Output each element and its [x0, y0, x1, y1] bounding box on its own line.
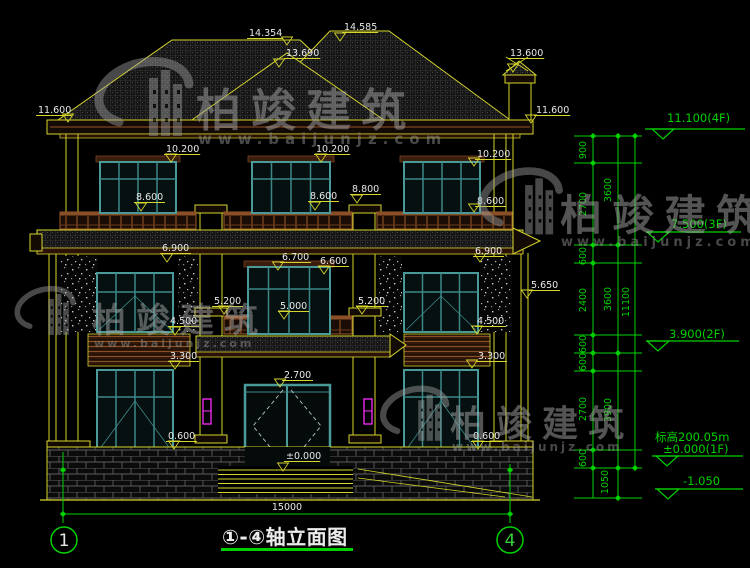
pier-cap [195, 435, 227, 443]
elevation-dim-label: 4.500 [477, 316, 504, 327]
chain-dim-value: 2400 [578, 288, 589, 312]
pier-cap [349, 435, 381, 443]
watermark-brand-text: 柏竣建筑 [450, 404, 634, 445]
elevation-dim-label: 11.600 [536, 105, 569, 116]
logo-window-dot [153, 104, 156, 108]
elevation-dim-label: 8.600 [310, 191, 337, 202]
logo-window-dot [51, 315, 53, 317]
logo-window-dot [529, 207, 532, 210]
elevation-dim-label: 5.650 [531, 280, 558, 291]
logo-window-dot [529, 219, 532, 222]
logo-window-dot [438, 428, 440, 431]
chain-tick-dot [590, 332, 596, 338]
marker-triangle [647, 341, 669, 351]
chain-tick-dot [632, 465, 638, 471]
logo-window-dot [539, 207, 542, 210]
elevation-dim-label: 11.600 [38, 105, 71, 116]
elevation-dim-label: 2.700 [284, 370, 311, 381]
chain-dim-value: 600 [578, 335, 589, 353]
elevation-dim-label: 8.800 [352, 184, 379, 195]
chain-dim-value: 900 [578, 141, 589, 159]
watermark-url-text: www.baijunjz.com [561, 235, 750, 250]
canopy-fascia-1f [196, 352, 390, 357]
chain-dim-value: 1050 [600, 470, 611, 494]
cad-drawing: 14.35414.58513.69013.60011.60011.60010.2… [0, 0, 750, 568]
logo-window-dot [438, 418, 440, 421]
logo-window-dot [66, 306, 68, 308]
drawing-title: ①-④轴立面图 [222, 521, 382, 550]
elevation-dim-label: 13.690 [286, 48, 319, 59]
floor-marker-label: ±0.000(1F) [663, 442, 728, 456]
logo-window-dot [51, 324, 53, 326]
dim-leader-arrow [522, 290, 533, 298]
chimney-cap [505, 75, 535, 83]
watermark-brand-text: 柏竣建筑 [92, 301, 268, 341]
axis-bubble-number: 1 [59, 531, 70, 551]
chimney-body [509, 83, 531, 120]
awning-end-left [30, 234, 42, 251]
logo-window-dot [165, 90, 168, 94]
logo-window-dot [177, 90, 180, 94]
elevation-drawing-canvas: 14.35414.58513.69013.60011.60011.60010.2… [0, 0, 750, 568]
pier-cap [195, 205, 227, 213]
dim-tick-dot [60, 511, 66, 517]
chain-tick-dot [615, 350, 621, 356]
logo-window-dot [153, 90, 156, 94]
elevation-dim-label: 5.000 [280, 301, 307, 312]
pier-cap [47, 441, 90, 447]
elevation-dim-label: 3.300 [170, 351, 197, 362]
watermark-url-text: www.baijunjz.com [198, 130, 447, 148]
logo-window-dot [549, 195, 552, 198]
elevation-dim-label: 6.600 [320, 256, 347, 267]
logo-window-dot [165, 104, 168, 108]
chain-dim-value: 11100 [621, 287, 632, 317]
chain-dim-value: 600 [578, 353, 589, 371]
logo-window-dot [429, 418, 431, 421]
elevation-dim-label: 6.700 [282, 252, 309, 263]
awning-fascia-3f [37, 248, 523, 254]
chain-tick-dot [615, 465, 621, 471]
chain-tick-dot [590, 465, 596, 471]
chimney-roof [503, 61, 536, 75]
elevation-dim-label: 3.300 [478, 351, 505, 362]
logo-window-dot [66, 324, 68, 326]
logo-bar [535, 178, 543, 234]
elevation-dim-label: 13.600 [510, 48, 543, 59]
watermark-url-text: www.baijunjz.com [94, 337, 254, 350]
logo-window-dot [177, 104, 180, 108]
marker-triangle [656, 456, 678, 466]
logo-window-dot [421, 418, 423, 421]
logo-bar [427, 395, 433, 441]
logo-window-dot [58, 324, 60, 326]
watermark-url-text: www.baijunjz.com [452, 440, 623, 454]
floor-marker-label: 3.900(2F) [669, 327, 725, 341]
elevation-dim-label: 10.200 [477, 149, 510, 160]
watermark-brand-text: 柏竣建筑 [560, 191, 750, 240]
chain-tick-dot [615, 495, 621, 501]
chain-tick-dot [590, 350, 596, 356]
floor-marker-label: 11.100(4F) [667, 111, 730, 125]
logo-bar [161, 70, 170, 136]
floor-marker-label: -1.050 [683, 474, 720, 488]
chain-tick-dot [590, 133, 596, 139]
chain-tick-dot [615, 133, 621, 139]
elevation-dim-label: 0.600 [168, 431, 195, 442]
elevation-dim-label: 6.900 [475, 246, 502, 257]
logo-window-dot [153, 118, 156, 122]
marker-triangle [657, 489, 679, 499]
logo-bar [56, 294, 62, 335]
logo-window-dot [58, 306, 60, 308]
chain-tick-dot [590, 260, 596, 266]
marker-triangle [652, 129, 674, 139]
logo-window-dot [549, 219, 552, 222]
chain-tick-dot [632, 133, 638, 139]
floor-level-markers: 11.100(4F)7.500(3F)3.900(2F)标高200.05m±0.… [645, 111, 745, 499]
stone-speckle-pier [378, 256, 402, 332]
logo-window-dot [539, 195, 542, 198]
elevation-dim-label: 5.200 [358, 296, 385, 307]
logo-window-dot [165, 118, 168, 122]
axis-bubble-number: 4 [505, 531, 516, 551]
logo-window-dot [438, 409, 440, 412]
dim-leader-arrow [352, 195, 363, 203]
chain-tick-dot [590, 368, 596, 374]
logo-window-dot [429, 428, 431, 431]
logo-window-dot [177, 118, 180, 122]
dim-leader-arrow [162, 254, 173, 262]
elevation-dim-label: 14.354 [249, 28, 282, 39]
elevation-dim-label: 10.200 [166, 144, 199, 155]
chain-tick-dot [590, 160, 596, 166]
dim-tick-dot [507, 511, 513, 517]
elevation-dim-label: 8.600 [136, 192, 163, 203]
chain-dim-value: 3600 [603, 287, 614, 311]
overall-dim-value: 15000 [272, 502, 302, 513]
pier-cap [349, 205, 381, 213]
logo-window-dot [529, 195, 532, 198]
elevation-dim-label: 6.900 [162, 243, 189, 254]
logo-window-dot [429, 409, 431, 412]
logo-window-dot [549, 207, 552, 210]
elevation-dim-label: ±0.000 [286, 451, 321, 462]
elevation-dim-label: 14.585 [344, 22, 377, 33]
logo-window-dot [421, 409, 423, 412]
logo-window-dot [51, 306, 53, 308]
logo-window-dot [66, 315, 68, 317]
logo-window-dot [421, 428, 423, 431]
title-underline [221, 548, 353, 551]
logo-window-dot [58, 315, 60, 317]
logo-window-dot [539, 219, 542, 222]
